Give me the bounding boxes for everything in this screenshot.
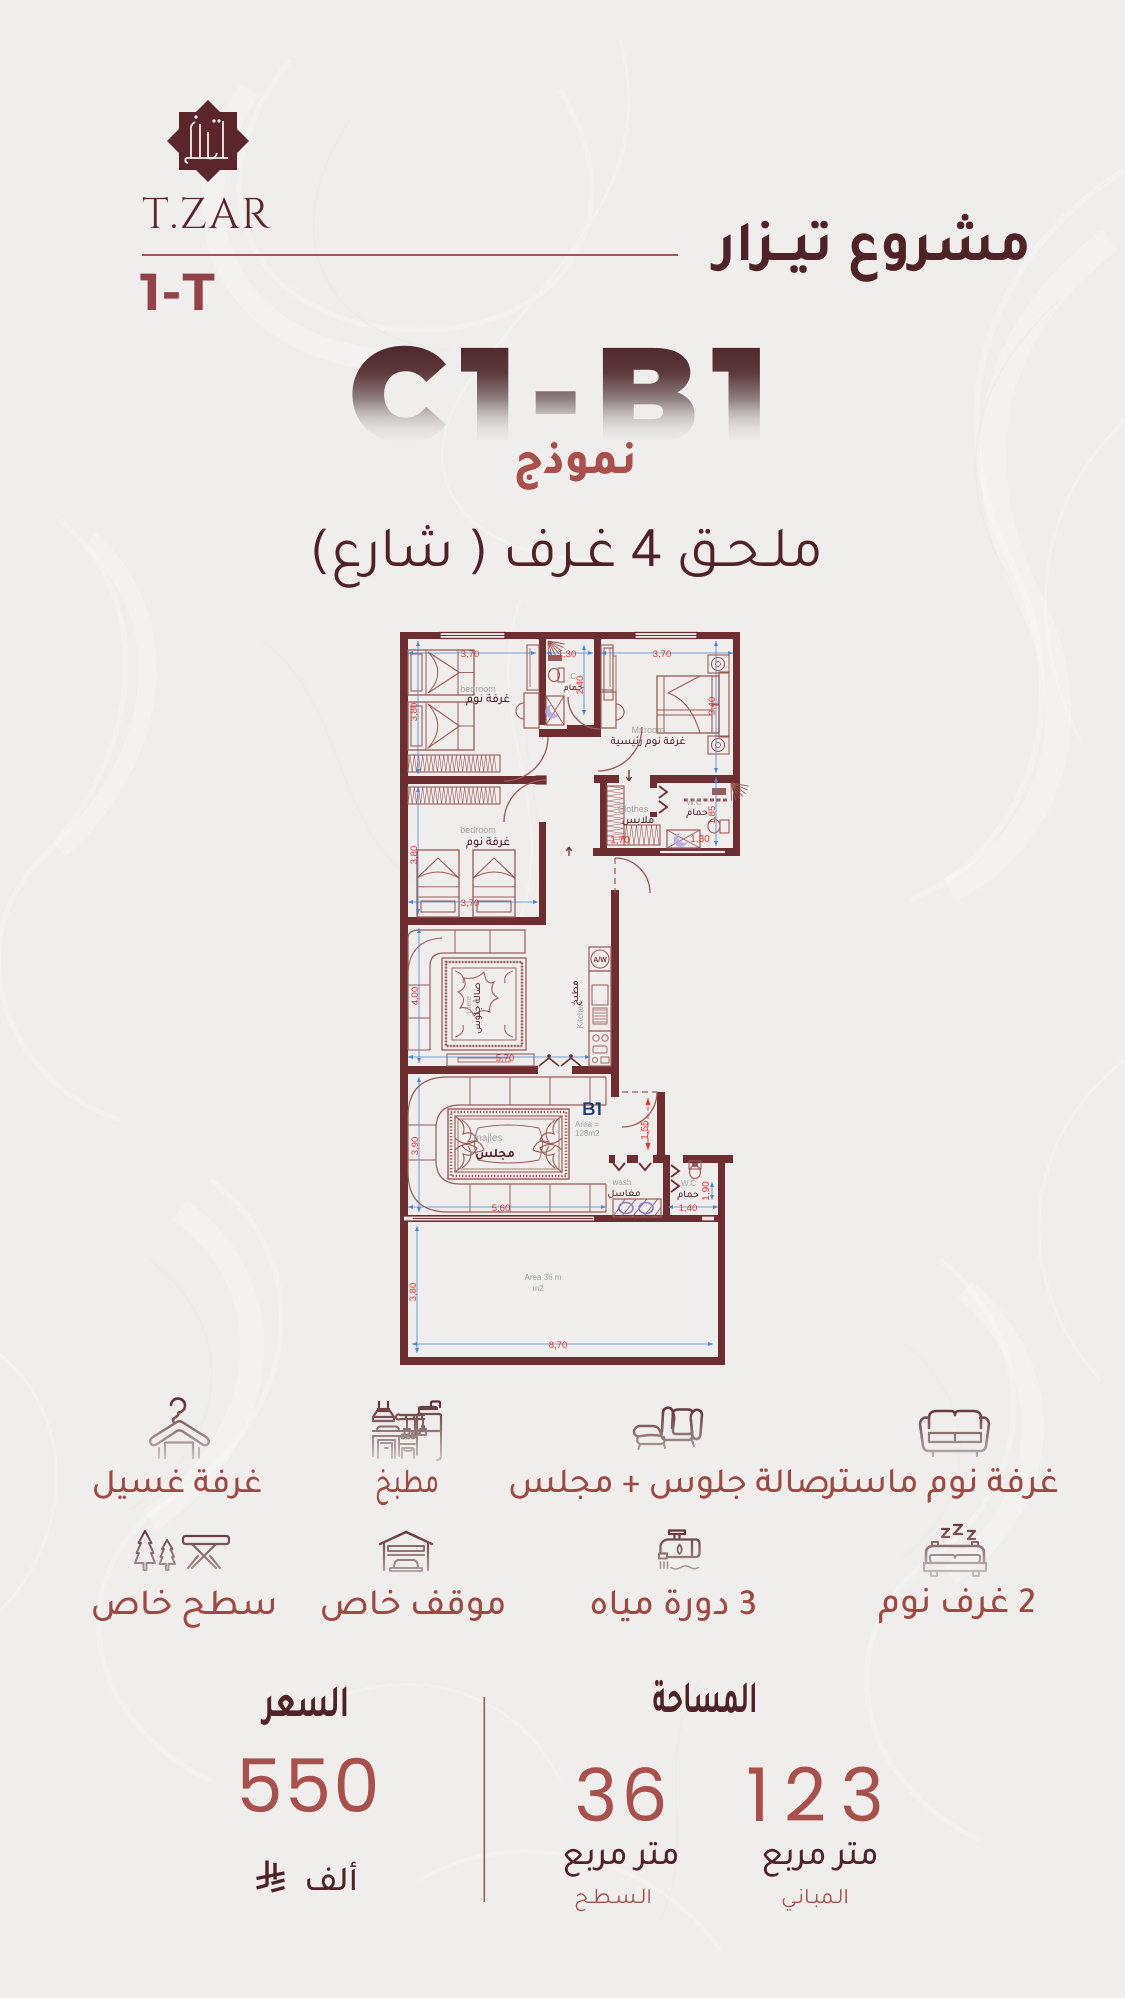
svg-text:3,40: 3,40	[707, 697, 718, 716]
svg-text:5,60: 5,60	[492, 1203, 511, 1214]
svg-text:Area 36 m: Area 36 m	[525, 1273, 562, 1282]
svg-text:bedroom: bedroom	[460, 825, 496, 835]
svg-text:W.C: W.C	[686, 798, 701, 807]
svg-text:Area =: Area =	[575, 1120, 599, 1129]
svg-text:1,55: 1,55	[640, 1120, 651, 1140]
svg-text:1,85: 1,85	[707, 806, 718, 825]
svg-text:Mr.room: Mr.room	[631, 725, 664, 735]
svg-text:Litere: Litere	[466, 996, 473, 1014]
svg-text:m2: m2	[532, 1284, 544, 1293]
svg-text:4,00: 4,00	[410, 987, 421, 1006]
svg-text:Kitchen: Kitchen	[576, 1002, 585, 1029]
svg-text:1,30: 1,30	[558, 649, 577, 660]
svg-text:1,30: 1,30	[690, 834, 710, 845]
svg-text:wash: wash	[612, 1178, 632, 1187]
svg-text:3,70: 3,70	[653, 649, 672, 660]
svg-text:3,70: 3,70	[461, 649, 480, 660]
svg-text:3,80: 3,80	[408, 1283, 419, 1302]
svg-text:W.C: W.C	[681, 1179, 696, 1188]
svg-text:1,40: 1,40	[679, 1203, 698, 1214]
svg-text:Clothes: Clothes	[618, 804, 649, 814]
svg-text:A/W: A/W	[593, 957, 607, 964]
svg-text:2,40: 2,40	[575, 676, 586, 695]
svg-text:1,90: 1,90	[701, 1181, 712, 1201]
svg-text:128m2: 128m2	[575, 1129, 600, 1138]
svg-text:3,80: 3,80	[409, 703, 420, 722]
svg-text:3,80: 3,80	[409, 846, 420, 865]
svg-text:8,70: 8,70	[549, 1340, 568, 1351]
svg-text:3,70: 3,70	[461, 898, 480, 909]
svg-text:3,90: 3,90	[410, 1137, 421, 1156]
svg-text:5,70: 5,70	[496, 1053, 515, 1064]
svg-text:1,70: 1,70	[610, 835, 630, 846]
svg-text:bedroom: bedroom	[460, 684, 496, 694]
svg-text:majles: majles	[474, 1133, 503, 1144]
